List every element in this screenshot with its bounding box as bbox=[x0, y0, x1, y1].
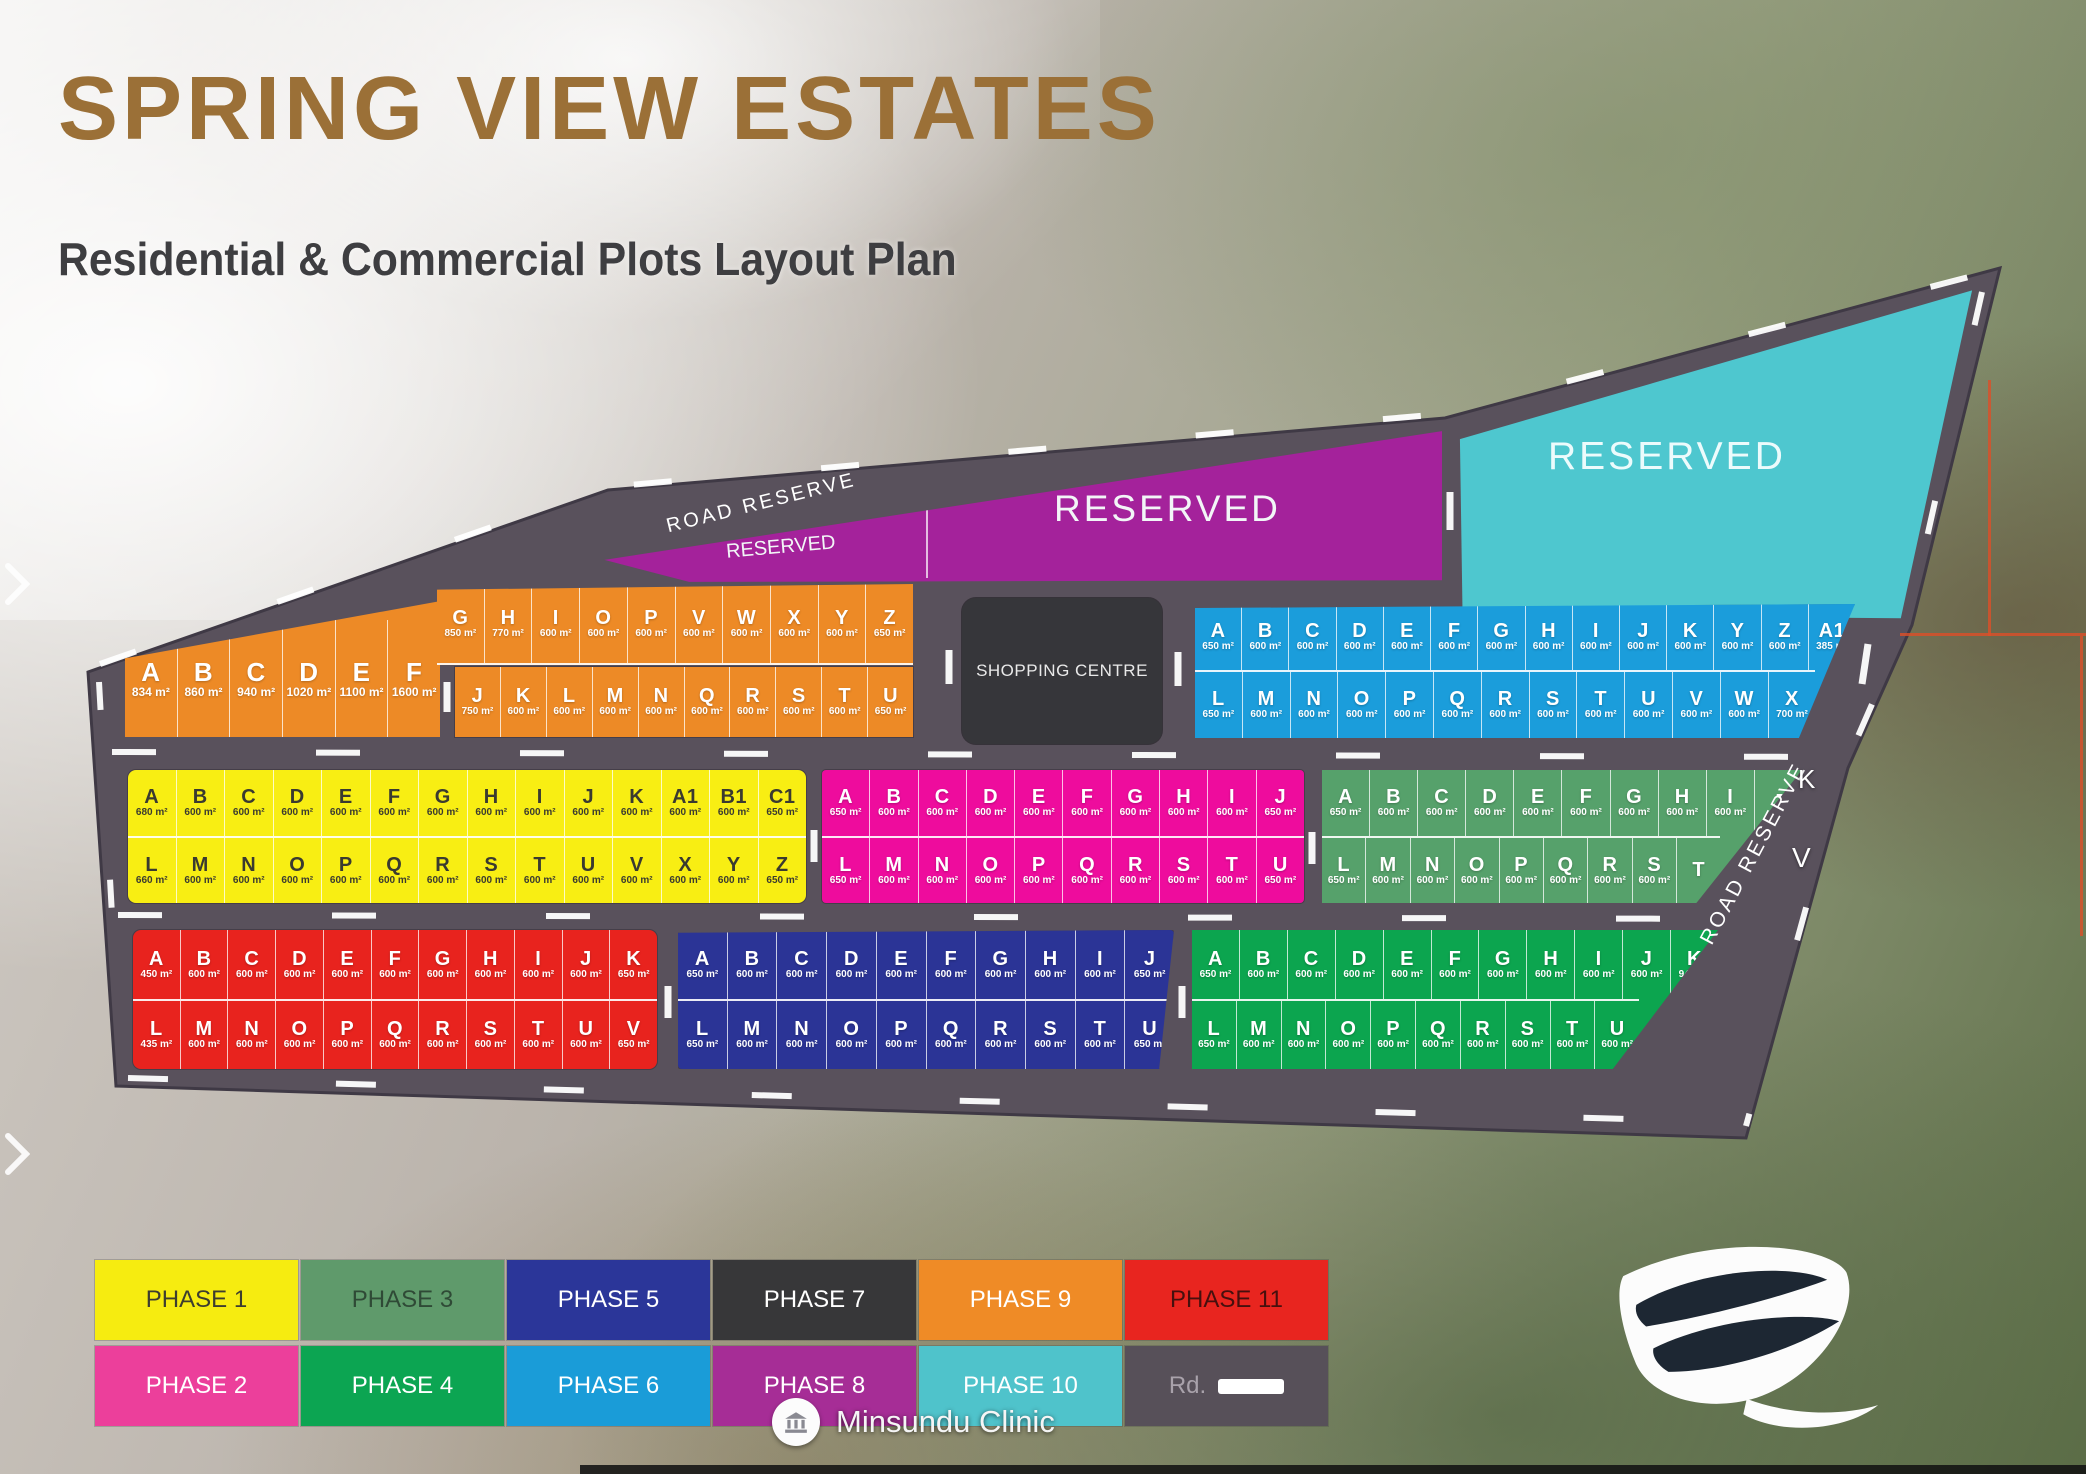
plot-phase6-q: Q600 m² bbox=[1433, 672, 1481, 738]
plot-row: L650 m²M600 m²N600 m²O600 m²P600 m²Q600 … bbox=[1195, 670, 1815, 738]
plot-phase5-p: P600 m² bbox=[876, 1001, 926, 1070]
legend-phase-4: PHASE 4 bbox=[301, 1346, 504, 1426]
plot-phase9-top-h: H770 m² bbox=[484, 584, 532, 663]
plot-phase6-r: R600 m² bbox=[1481, 672, 1529, 738]
plot-phase2-g: G600 m² bbox=[1111, 770, 1159, 836]
plot-phase4-e: E600 m² bbox=[1383, 930, 1431, 999]
plot-phase2-j: J650 m² bbox=[1256, 770, 1304, 836]
plot-phase1-c1: C1650 m² bbox=[758, 770, 807, 836]
plot-phase11-g: G600 m² bbox=[418, 930, 466, 999]
plot-phase6-z: Z600 m² bbox=[1761, 604, 1808, 670]
reserved-purple-label: RESERVED bbox=[1054, 488, 1281, 530]
plot-phase11-d: D600 m² bbox=[275, 930, 323, 999]
plot-phase6-g: G600 m² bbox=[1477, 604, 1524, 670]
plot-row: A650 m²B600 m²C600 m²D600 m²E600 m²F600 … bbox=[822, 770, 1304, 836]
plot-phase6-b: B600 m² bbox=[1241, 604, 1288, 670]
plot-phase1-a1: A1600 m² bbox=[661, 770, 710, 836]
plot-phase2-s: S600 m² bbox=[1159, 838, 1207, 904]
plot-phase1-u: U600 m² bbox=[564, 838, 613, 904]
plot-phase1-m: M600 m² bbox=[176, 838, 225, 904]
plot-phase6-l: L650 m² bbox=[1195, 672, 1242, 738]
plot-phase11-m: M600 m² bbox=[180, 1001, 228, 1070]
plot-phase1-l: L660 m² bbox=[128, 838, 176, 904]
plot-block-phase11: A450 m²B600 m²C600 m²D600 m²E600 m²F600 … bbox=[133, 930, 657, 1069]
plot-phase1-b1: B1600 m² bbox=[709, 770, 758, 836]
plot-phase2-b: B600 m² bbox=[869, 770, 917, 836]
reserved-cyan-label: RESERVED bbox=[1548, 435, 1786, 479]
plot-phase9-top-w: W600 m² bbox=[722, 584, 770, 663]
legend-label: Rd. bbox=[1169, 1372, 1206, 1400]
plot-phase2-o: O600 m² bbox=[966, 838, 1014, 904]
plot-phase6-y: Y600 m² bbox=[1713, 604, 1760, 670]
plot-phase4-n: N600 m² bbox=[1281, 1001, 1326, 1070]
plot-phase1-p: P600 m² bbox=[321, 838, 370, 904]
plot-phase9-bottom-s: S600 m² bbox=[775, 667, 821, 737]
road-swatch bbox=[1218, 1379, 1284, 1394]
plot-phase5-q: Q600 m² bbox=[926, 1001, 976, 1070]
plot-phase9-top-x: X600 m² bbox=[770, 584, 818, 663]
plot-phase3-r: R600 m² bbox=[1587, 838, 1631, 904]
legend-label: PHASE 4 bbox=[352, 1372, 453, 1400]
plot-phase3-h: H600 m² bbox=[1658, 770, 1706, 836]
plot-phase5-s: S600 m² bbox=[1025, 1001, 1075, 1070]
plot-phase11-t: T600 m² bbox=[514, 1001, 562, 1070]
legend-phase-9: PHASE 9 bbox=[919, 1260, 1122, 1340]
plot-phase5-d: D600 m² bbox=[826, 930, 876, 999]
plot-phase5-h: H600 m² bbox=[1025, 930, 1075, 999]
plot-block-phase1: A680 m²B600 m²C600 m²D600 m²E600 m²F600 … bbox=[128, 770, 806, 903]
plot-phase3-i: I600 m² bbox=[1706, 770, 1754, 836]
legend-phase-3: PHASE 3 bbox=[301, 1260, 504, 1340]
plot-phase2-r: R600 m² bbox=[1111, 838, 1159, 904]
plot-phase2-i: I600 m² bbox=[1207, 770, 1255, 836]
legend-phase-1: PHASE 1 bbox=[95, 1260, 298, 1340]
plot-phase4-c: C600 m² bbox=[1287, 930, 1335, 999]
plot-phase1-s: S600 m² bbox=[467, 838, 516, 904]
plot-phase11-l: L435 m² bbox=[133, 1001, 180, 1070]
plot-phase9-bottom-q: Q600 m² bbox=[684, 667, 730, 737]
plot-phase6-h: H600 m² bbox=[1525, 604, 1572, 670]
clinic-pin-icon bbox=[772, 1398, 820, 1446]
plot-phase11-a: A450 m² bbox=[133, 930, 180, 999]
plot-phase1-z: Z650 m² bbox=[758, 838, 807, 904]
plot-phase4-d: D600 m² bbox=[1335, 930, 1383, 999]
legend-label: PHASE 10 bbox=[963, 1372, 1078, 1400]
plot-phase11-o: O600 m² bbox=[275, 1001, 323, 1070]
plot-phase5-t: T600 m² bbox=[1075, 1001, 1125, 1070]
plot-phase6-d: D600 m² bbox=[1336, 604, 1383, 670]
legend-label: PHASE 9 bbox=[970, 1286, 1071, 1314]
plot-phase3-b: B600 m² bbox=[1369, 770, 1417, 836]
plot-phase3-f: F600 m² bbox=[1561, 770, 1609, 836]
plot-phase11-e: E600 m² bbox=[323, 930, 371, 999]
plot-phase2-a: A650 m² bbox=[822, 770, 869, 836]
plot-phase2-h: H600 m² bbox=[1159, 770, 1207, 836]
shopping-centre: SHOPPING CENTRE bbox=[962, 598, 1162, 744]
plot-phase1-c: C600 m² bbox=[224, 770, 273, 836]
plot-row: A650 m²B600 m²C600 m²D600 m²E600 m²F600 … bbox=[1322, 770, 1802, 836]
legend-phase-5: PHASE 5 bbox=[507, 1260, 710, 1340]
plot-phase9-left-e: E1100 m² bbox=[335, 620, 388, 737]
legend-label: PHASE 6 bbox=[558, 1372, 659, 1400]
plot-row: G850 m²H770 m²I600 m²O600 m²P600 m²V600 … bbox=[437, 584, 913, 663]
plot-phase9-left-d: D1020 m² bbox=[282, 620, 335, 737]
plot-phase4-p: P600 m² bbox=[1370, 1001, 1415, 1070]
plot-phase6-t: T600 m² bbox=[1576, 672, 1624, 738]
plot-phase9-top-z: Z650 m² bbox=[865, 584, 913, 663]
boundary-line bbox=[2080, 636, 2083, 936]
plot-phase5-b: B600 m² bbox=[727, 930, 777, 999]
plot-phase5-o: O600 m² bbox=[826, 1001, 876, 1070]
plot-phase9-bottom-j: J750 m² bbox=[455, 667, 500, 737]
legend-phase-7: PHASE 7 bbox=[713, 1260, 916, 1340]
plot-phase6-p: P600 m² bbox=[1385, 672, 1433, 738]
plot-phase11-r: R600 m² bbox=[418, 1001, 466, 1070]
plot-phase1-t: T600 m² bbox=[515, 838, 564, 904]
plot-phase5-l: L650 m² bbox=[678, 1001, 727, 1070]
plot-block-phase9-bottom: J750 m²K600 m²L600 m²M600 m²N600 m²Q600 … bbox=[455, 667, 913, 737]
plot-phase1-e: E600 m² bbox=[321, 770, 370, 836]
plot-phase4-l: L650 m² bbox=[1192, 1001, 1236, 1070]
plot-phase9-top-y: Y600 m² bbox=[818, 584, 866, 663]
plot-row: L660 m²M600 m²N600 m²O600 m²P600 m²Q600 … bbox=[128, 836, 806, 904]
plot-phase11-n: N600 m² bbox=[227, 1001, 275, 1070]
plot-phase3-m: M600 m² bbox=[1365, 838, 1409, 904]
plot-phase1-x: X600 m² bbox=[661, 838, 710, 904]
boundary-line bbox=[1988, 380, 1991, 636]
plot-phase3-a: A650 m² bbox=[1322, 770, 1369, 836]
plot-phase9-top-g: G850 m² bbox=[437, 584, 484, 663]
plot-phase5-j: J650 m² bbox=[1124, 930, 1174, 999]
plot-phase6-a: A650 m² bbox=[1195, 604, 1241, 670]
plot-phase11-j: J600 m² bbox=[562, 930, 610, 999]
plot-phase5-r: R600 m² bbox=[975, 1001, 1025, 1070]
plot-phase1-n: N600 m² bbox=[224, 838, 273, 904]
plot-phase1-b: B600 m² bbox=[176, 770, 225, 836]
plot-phase9-bottom-t: T600 m² bbox=[821, 667, 867, 737]
plot-phase6-o: O600 m² bbox=[1337, 672, 1385, 738]
plot-phase5-e: E600 m² bbox=[876, 930, 926, 999]
plot-phase1-v: V600 m² bbox=[612, 838, 661, 904]
plot-phase1-h: H600 m² bbox=[467, 770, 516, 836]
legend-label: PHASE 7 bbox=[764, 1286, 865, 1314]
brand-logo-swoosh bbox=[1598, 1238, 1908, 1474]
plot-phase11-q: Q600 m² bbox=[371, 1001, 419, 1070]
legend-rd-: Rd. bbox=[1125, 1346, 1328, 1426]
plot-phase4-i: I600 m² bbox=[1574, 930, 1622, 999]
plot-phase11-s: S600 m² bbox=[466, 1001, 514, 1070]
plot-phase2-q: Q600 m² bbox=[1062, 838, 1110, 904]
plot-phase9-bottom-l: L600 m² bbox=[546, 667, 592, 737]
plot-phase2-d: D600 m² bbox=[966, 770, 1014, 836]
plot-phase9-bottom-r: R600 m² bbox=[729, 667, 775, 737]
plot-phase2-t: T600 m² bbox=[1207, 838, 1255, 904]
legend-label: PHASE 8 bbox=[764, 1372, 865, 1400]
plot-phase9-bottom-k: K600 m² bbox=[500, 667, 546, 737]
plot-phase11-b: B600 m² bbox=[180, 930, 228, 999]
layout-plan-page: RESERVED RESERVED ROAD RESERVE RESERVED … bbox=[0, 0, 2086, 1474]
boundary-line bbox=[1900, 633, 2086, 636]
plot-phase2-f: F600 m² bbox=[1062, 770, 1110, 836]
plot-phase4-a: A650 m² bbox=[1192, 930, 1239, 999]
plot-phase1-o: O600 m² bbox=[273, 838, 322, 904]
legend-phase-2: PHASE 2 bbox=[95, 1346, 298, 1426]
plot-phase9-left-f: F1600 m² bbox=[387, 620, 440, 737]
phase-legend: PHASE 1PHASE 3PHASE 5PHASE 7PHASE 9PHASE… bbox=[95, 1260, 1328, 1426]
stray-plot-letter-v: V bbox=[1792, 842, 1811, 874]
plot-phase3-s: S600 m² bbox=[1632, 838, 1676, 904]
plot-phase1-g: G600 m² bbox=[418, 770, 467, 836]
plot-phase11-h: H600 m² bbox=[466, 930, 514, 999]
plot-phase11-k: K650 m² bbox=[609, 930, 657, 999]
plot-phase9-bottom-n: N600 m² bbox=[638, 667, 684, 737]
plot-phase2-m: M600 m² bbox=[869, 838, 917, 904]
chevron-right-icon[interactable] bbox=[4, 1132, 30, 1176]
plot-phase4-h: H600 m² bbox=[1526, 930, 1574, 999]
plot-phase5-c: C600 m² bbox=[776, 930, 826, 999]
legend-label: PHASE 2 bbox=[146, 1372, 247, 1400]
plot-phase6-k: K600 m² bbox=[1666, 604, 1713, 670]
plot-phase6-m: M600 m² bbox=[1242, 672, 1290, 738]
stray-plot-letter-k: K bbox=[1798, 764, 1815, 795]
plot-row: J750 m²K600 m²L600 m²M600 m²N600 m²Q600 … bbox=[455, 667, 913, 737]
plot-phase4-o: O600 m² bbox=[1325, 1001, 1370, 1070]
legend-label: PHASE 1 bbox=[146, 1286, 247, 1314]
plot-block-phase6: A650 m²B600 m²C600 m²D600 m²E600 m²F600 … bbox=[1195, 604, 1855, 738]
plot-phase4-g: G600 m² bbox=[1478, 930, 1526, 999]
photo-dark-strip bbox=[580, 1465, 2086, 1474]
plot-phase6-f: F600 m² bbox=[1430, 604, 1477, 670]
plot-phase11-c: C600 m² bbox=[227, 930, 275, 999]
legend-label: PHASE 3 bbox=[352, 1286, 453, 1314]
plot-phase4-r: R600 m² bbox=[1460, 1001, 1505, 1070]
plot-phase5-n: N600 m² bbox=[776, 1001, 826, 1070]
plot-row: L435 m²M600 m²N600 m²O600 m²P600 m²Q600 … bbox=[133, 999, 657, 1070]
plot-phase2-n: N600 m² bbox=[918, 838, 966, 904]
plot-phase5-g: G600 m² bbox=[975, 930, 1025, 999]
page-subtitle: Residential & Commercial Plots Layout Pl… bbox=[58, 232, 957, 286]
plot-phase1-r: R600 m² bbox=[418, 838, 467, 904]
legend-label: PHASE 5 bbox=[558, 1286, 659, 1314]
page-title: SPRING VIEW ESTATES bbox=[58, 58, 1161, 161]
plot-row: A450 m²B600 m²C600 m²D600 m²E600 m²F600 … bbox=[133, 930, 657, 999]
plot-phase1-i: I600 m² bbox=[515, 770, 564, 836]
plot-phase1-j: J600 m² bbox=[564, 770, 613, 836]
plot-phase6-s: S600 m² bbox=[1529, 672, 1577, 738]
plot-phase1-k: K600 m² bbox=[612, 770, 661, 836]
plot-phase5-i: I600 m² bbox=[1075, 930, 1125, 999]
plot-phase1-a: A680 m² bbox=[128, 770, 176, 836]
plot-phase2-c: C600 m² bbox=[918, 770, 966, 836]
plot-row: A650 m²B600 m²C600 m²D600 m²E600 m²F600 … bbox=[1195, 604, 1855, 670]
map-poi-clinic: Minsundu Clinic bbox=[772, 1398, 1055, 1446]
plot-phase4-b: B600 m² bbox=[1239, 930, 1287, 999]
plot-block-phase2: A650 m²B600 m²C600 m²D600 m²E600 m²F600 … bbox=[822, 770, 1304, 903]
plot-phase4-t: T600 m² bbox=[1550, 1001, 1595, 1070]
clinic-label: Minsundu Clinic bbox=[836, 1404, 1055, 1440]
plot-phase4-j: J600 m² bbox=[1622, 930, 1670, 999]
plot-phase9-bottom-u: U650 m² bbox=[867, 667, 913, 737]
plot-phase4-s: S600 m² bbox=[1505, 1001, 1550, 1070]
plot-phase6-v: V600 m² bbox=[1672, 672, 1720, 738]
plot-phase2-e: E600 m² bbox=[1014, 770, 1062, 836]
plot-phase3-q: Q600 m² bbox=[1543, 838, 1587, 904]
plot-phase9-top-i: I600 m² bbox=[531, 584, 579, 663]
plot-phase9-top-p: P600 m² bbox=[627, 584, 675, 663]
plot-phase4-q: Q600 m² bbox=[1415, 1001, 1460, 1070]
plot-phase9-top-v: V600 m² bbox=[675, 584, 723, 663]
plot-row: A680 m²B600 m²C600 m²D600 m²E600 m²F600 … bbox=[128, 770, 806, 836]
plot-block-phase9-top: G850 m²H770 m²I600 m²O600 m²P600 m²V600 … bbox=[437, 584, 913, 665]
plot-phase11-p: P600 m² bbox=[323, 1001, 371, 1070]
plot-phase3-c: C600 m² bbox=[1417, 770, 1465, 836]
plot-phase11-u: U600 m² bbox=[562, 1001, 610, 1070]
plot-row: L650 m²M600 m²N600 m²O600 m²P600 m²Q600 … bbox=[1322, 836, 1720, 904]
plot-phase9-bottom-m: M600 m² bbox=[592, 667, 638, 737]
plot-phase3-d: D600 m² bbox=[1465, 770, 1513, 836]
plot-row: L650 m²M600 m²N600 m²O600 m²P600 m²Q600 … bbox=[822, 836, 1304, 904]
plot-phase6-u: U600 m² bbox=[1624, 672, 1672, 738]
plot-phase1-q: Q600 m² bbox=[370, 838, 419, 904]
plot-phase1-d: D600 m² bbox=[273, 770, 322, 836]
plot-phase1-y: Y600 m² bbox=[709, 838, 758, 904]
plot-row: L650 m²M600 m²N600 m²O600 m²P600 m²Q600 … bbox=[1192, 999, 1639, 1070]
plot-phase4-m: M600 m² bbox=[1236, 1001, 1281, 1070]
plot-phase5-a: A650 m² bbox=[678, 930, 727, 999]
plot-phase6-e: E600 m² bbox=[1383, 604, 1430, 670]
plot-phase6-i: I600 m² bbox=[1572, 604, 1619, 670]
plot-phase2-u: U650 m² bbox=[1256, 838, 1304, 904]
plot-phase6-n: N600 m² bbox=[1290, 672, 1338, 738]
plot-phase3-n: N600 m² bbox=[1410, 838, 1454, 904]
plot-phase3-g: G600 m² bbox=[1610, 770, 1658, 836]
plot-phase9-top-o: O600 m² bbox=[579, 584, 627, 663]
plot-phase5-m: M600 m² bbox=[727, 1001, 777, 1070]
shopping-centre-label: SHOPPING CENTRE bbox=[976, 661, 1148, 681]
plot-phase11-i: I600 m² bbox=[514, 930, 562, 999]
plot-block-phase5: A650 m²B600 m²C600 m²D600 m²E600 m²F600 … bbox=[678, 930, 1174, 1069]
plot-phase1-f: F600 m² bbox=[370, 770, 419, 836]
legend-phase-11: PHASE 11 bbox=[1125, 1260, 1328, 1340]
plot-phase2-p: P600 m² bbox=[1014, 838, 1062, 904]
plot-phase4-f: F600 m² bbox=[1431, 930, 1479, 999]
plot-row: A650 m²B600 m²C600 m²D600 m²E600 m²F600 … bbox=[1192, 930, 1718, 999]
plot-phase3-e: E600 m² bbox=[1513, 770, 1561, 836]
plot-row: A650 m²B600 m²C600 m²D600 m²E600 m²F600 … bbox=[678, 930, 1174, 999]
plot-phase6-c: C600 m² bbox=[1288, 604, 1335, 670]
plot-phase11-v: V650 m² bbox=[609, 1001, 657, 1070]
plot-phase6-w: W600 m² bbox=[1720, 672, 1768, 738]
chevron-right-icon[interactable] bbox=[4, 562, 30, 606]
plot-row: L650 m²M600 m²N600 m²O600 m²P600 m²Q600 … bbox=[678, 999, 1174, 1070]
plot-phase11-f: F600 m² bbox=[371, 930, 419, 999]
plot-phase3-o: O600 m² bbox=[1454, 838, 1498, 904]
plot-phase5-f: F600 m² bbox=[926, 930, 976, 999]
legend-label: PHASE 11 bbox=[1170, 1286, 1283, 1314]
plot-phase2-l: L650 m² bbox=[822, 838, 869, 904]
legend-phase-6: PHASE 6 bbox=[507, 1346, 710, 1426]
plot-phase3-p: P600 m² bbox=[1499, 838, 1543, 904]
plot-phase3-l: L650 m² bbox=[1322, 838, 1365, 904]
plot-phase6-j: J600 m² bbox=[1619, 604, 1666, 670]
